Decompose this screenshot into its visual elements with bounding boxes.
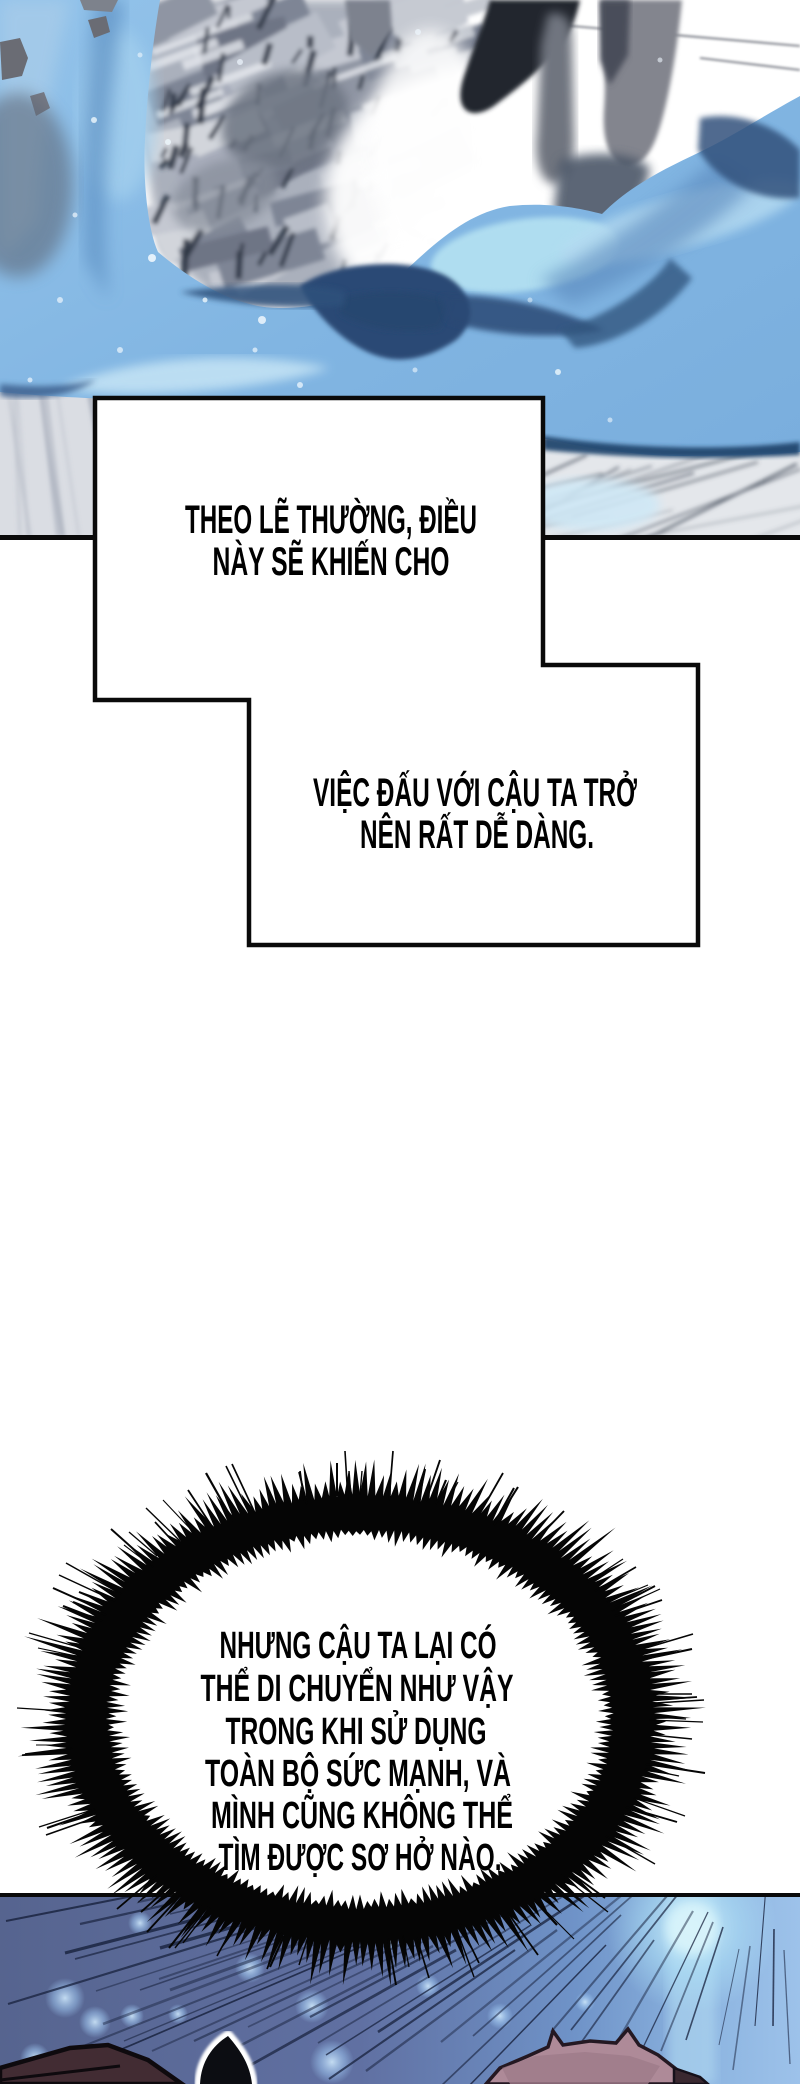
svg-text:THEO LẼ THƯỜNG, ĐIỀU: THEO LẼ THƯỜNG, ĐIỀU <box>185 496 477 542</box>
svg-text:TÌM ĐƯỢC SƠ HỞ NÀO.: TÌM ĐƯỢC SƠ HỞ NÀO. <box>219 1835 502 1879</box>
svg-text:MÌNH CŨNG KHÔNG THỂ: MÌNH CŨNG KHÔNG THỂ <box>211 1792 513 1837</box>
svg-text:NÀY SẼ KHIẾN CHO: NÀY SẼ KHIẾN CHO <box>213 538 450 584</box>
svg-text:TRONG KHI SỬ DỤNG: TRONG KHI SỬ DỤNG <box>226 1709 487 1753</box>
svg-text:VIỆC ĐẤU VỚI CẬU TA TRỞ: VIỆC ĐẤU VỚI CẬU TA TRỞ <box>313 769 638 815</box>
svg-text:NHƯNG CẬU TA LẠI CÓ: NHƯNG CẬU TA LẠI CÓ <box>220 1623 497 1667</box>
svg-text:TOÀN BỘ SỨC MẠNH, VÀ: TOÀN BỘ SỨC MẠNH, VÀ <box>205 1750 511 1795</box>
svg-text:THỂ DI CHUYỂN NHƯ VẬY: THỂ DI CHUYỂN NHƯ VẬY <box>201 1665 514 1710</box>
svg-text:NÊN RẤT DỄ DÀNG.: NÊN RẤT DỄ DÀNG. <box>360 811 594 857</box>
